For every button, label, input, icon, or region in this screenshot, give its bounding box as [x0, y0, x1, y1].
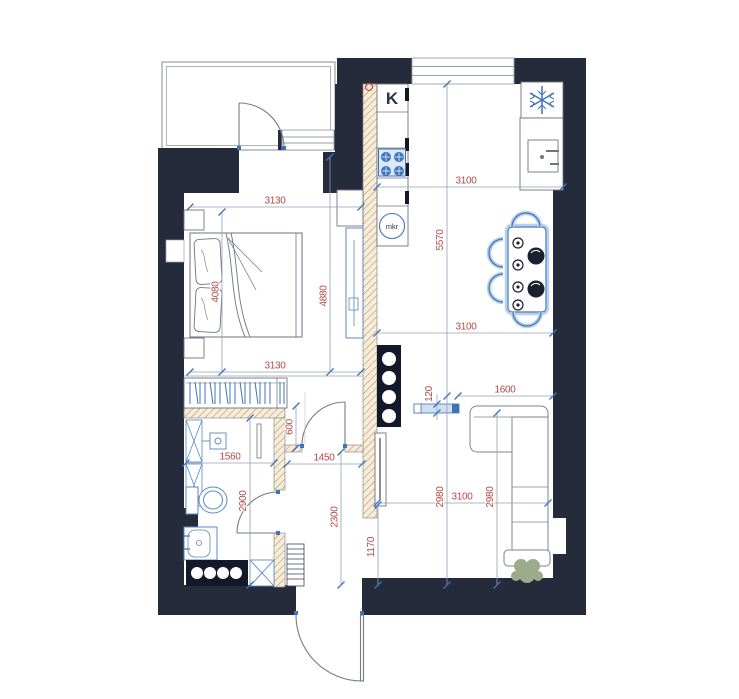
dim-hallway-bottom-width: 1170	[366, 536, 377, 557]
entrance-door	[296, 615, 364, 681]
radiator-icon	[287, 544, 304, 586]
nightstand	[184, 210, 204, 230]
dim-bathroom-width: 1560	[219, 452, 241, 463]
dim-living-depth-left: 2980	[435, 486, 446, 508]
dim-bedroom-depth-left: 4080	[211, 281, 222, 303]
dim-media-unit-length: 1600	[494, 385, 516, 396]
kitchen-counter-right	[520, 118, 563, 190]
nightstand	[184, 338, 204, 358]
dim-bedroom-width-bottom: 3130	[264, 361, 286, 372]
vanity-unit	[186, 560, 248, 586]
dim-media-unit-depth: 120	[424, 385, 435, 402]
shower-screen	[257, 424, 261, 458]
bedroom-hall-door	[302, 402, 345, 445]
floor-plan-drawing: K mkr	[0, 0, 739, 699]
stove-icon	[379, 149, 406, 176]
bedroom-wardrobe	[346, 228, 363, 338]
sofa	[470, 406, 550, 566]
tv-icon	[375, 433, 386, 506]
bedroom-window	[282, 130, 334, 150]
dim-bedroom-depth-right: 4880	[319, 285, 330, 307]
dim-bedroom-width-top: 3130	[264, 196, 286, 207]
bathtub-icon	[184, 527, 217, 560]
dim-hallway-depth: 2300	[330, 506, 341, 528]
washing-machine-icon	[202, 433, 226, 449]
microwave-label: mkr	[386, 222, 399, 231]
fridge	[521, 82, 563, 118]
sink-icon	[528, 140, 559, 172]
kitchen-window	[412, 58, 514, 84]
hall-wardrobe	[184, 378, 287, 408]
double-bed	[190, 233, 302, 337]
shelf-unit	[377, 345, 401, 427]
dim-living-width-bottom: 3100	[451, 492, 473, 503]
floor-plan-page: K mkr	[0, 0, 739, 699]
microwave-icon: mkr	[380, 214, 405, 239]
dim-kitchen-width-middle: 3100	[455, 322, 477, 333]
dim-living-depth-right: 2980	[485, 486, 496, 508]
plant-icon	[511, 559, 543, 583]
dining-set	[489, 213, 548, 326]
toilet-icon	[186, 487, 227, 514]
kitchen-label: K	[386, 89, 399, 108]
living-zone	[375, 345, 550, 583]
dim-hall-door-width: 600	[285, 418, 296, 435]
dim-hallway-width: 1450	[313, 453, 335, 464]
kitchen-zone: K mkr	[366, 82, 564, 246]
dim-kitchen-width-top: 3100	[455, 176, 477, 187]
dim-kitchen-living-depth: 5570	[435, 229, 446, 251]
dim-bathroom-depth: 2900	[238, 490, 249, 512]
